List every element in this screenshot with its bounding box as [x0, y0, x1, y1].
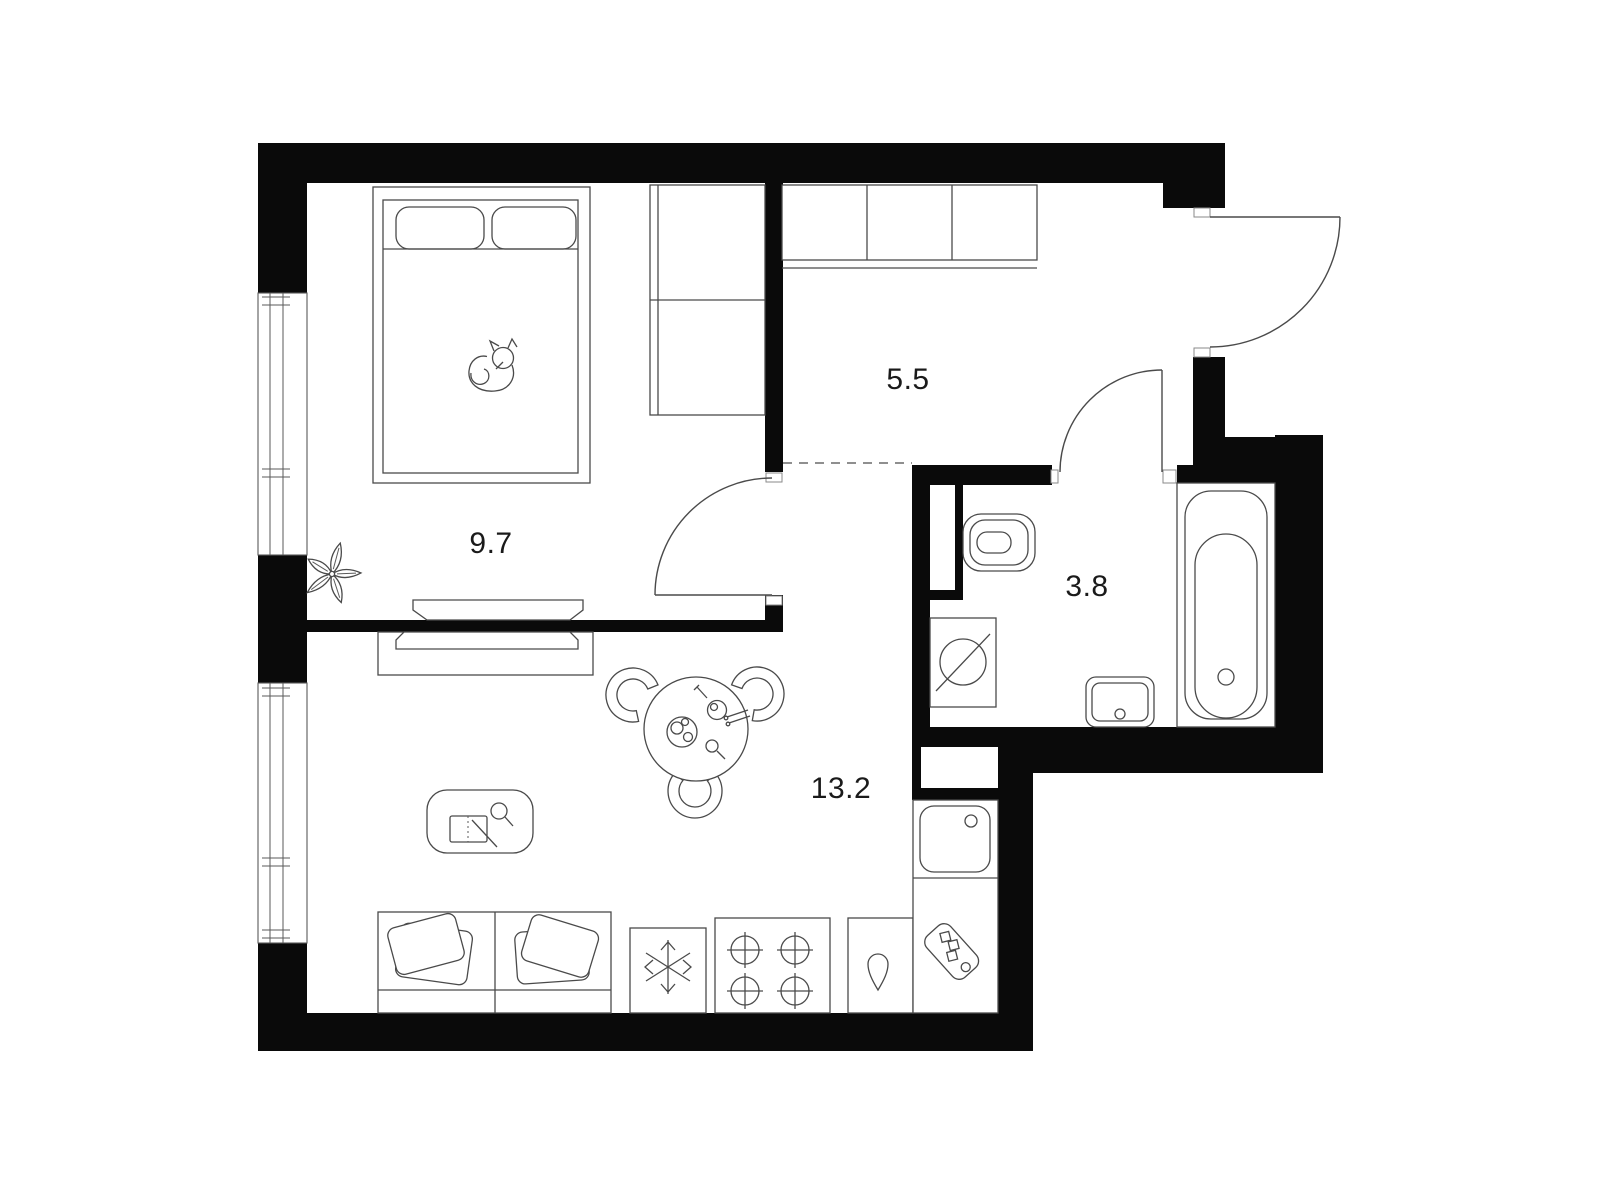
hallway-closet	[782, 185, 1037, 268]
room-area-label-hallway: 5.5	[886, 363, 929, 396]
toilet	[963, 514, 1035, 571]
room-area-label-bathroom: 3.8	[1065, 570, 1108, 603]
kitchen-sink	[920, 806, 990, 872]
plant-icon	[305, 542, 361, 604]
bathroom-door-swing	[1060, 370, 1162, 472]
room-area-label-living-kitchen: 13.2	[811, 772, 871, 805]
sofa	[378, 912, 611, 1013]
kitchen-counter-bottom	[848, 918, 913, 1013]
stove	[715, 918, 830, 1013]
coffee-table	[427, 790, 533, 853]
fridge	[630, 928, 706, 1013]
washing-machine	[930, 618, 996, 707]
window-bedroom	[258, 293, 307, 555]
bed	[373, 187, 590, 483]
dining-table	[606, 667, 784, 818]
room-area-label-bedroom: 9.7	[469, 527, 512, 560]
entrance-door-swing	[1210, 217, 1340, 347]
bathtub	[1177, 483, 1275, 727]
floor-plan-drawing: 9.7 5.5 3.8 13.2	[0, 0, 1600, 1200]
floor-plan-canvas: 9.7 5.5 3.8 13.2	[0, 0, 1600, 1200]
kitchen-counter-right	[913, 800, 998, 1013]
window-living	[258, 683, 307, 943]
bedroom-door-swing	[655, 478, 772, 595]
bathroom-sink	[1086, 677, 1154, 727]
wardrobe	[650, 185, 765, 415]
